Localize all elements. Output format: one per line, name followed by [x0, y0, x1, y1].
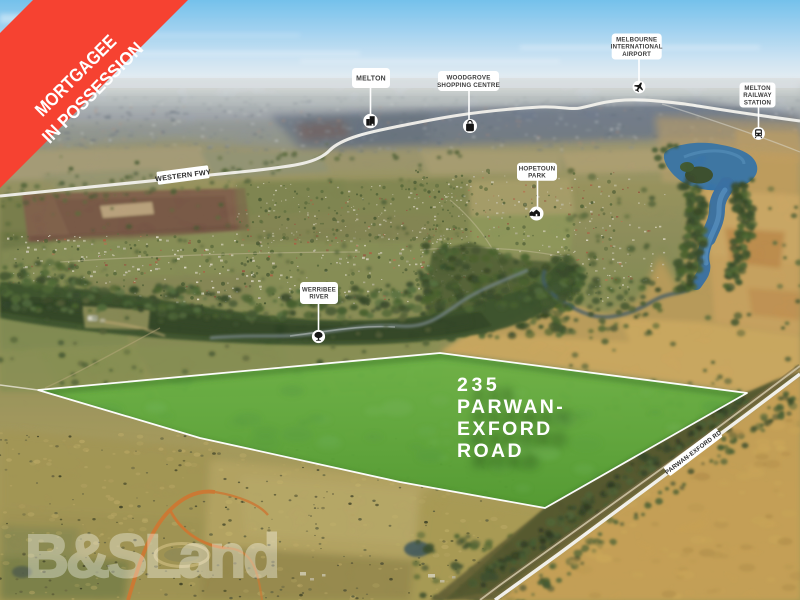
svg-text:MELBOURNE: MELBOURNE — [616, 37, 657, 44]
svg-text:MELTON: MELTON — [744, 85, 770, 92]
svg-text:INTERNATIONAL: INTERNATIONAL — [611, 44, 663, 51]
svg-text:235: 235 — [457, 374, 500, 396]
svg-text:AIRPORT: AIRPORT — [622, 51, 651, 58]
svg-text:SHOPPING CENTRE: SHOPPING CENTRE — [437, 82, 500, 89]
svg-text:WOODGROVE: WOODGROVE — [446, 75, 490, 82]
svg-text:HOPETOUN: HOPETOUN — [519, 165, 556, 172]
svg-text:RAILWAY: RAILWAY — [743, 92, 772, 99]
svg-text:STATION: STATION — [744, 99, 771, 106]
svg-text:MELTON: MELTON — [356, 76, 386, 83]
svg-text:PARK: PARK — [528, 173, 546, 180]
svg-text:PARWAN-: PARWAN- — [457, 396, 565, 418]
svg-text:EXFORD: EXFORD — [457, 418, 553, 440]
svg-text:WERRIBEE: WERRIBEE — [302, 288, 336, 294]
svg-text:ROAD: ROAD — [457, 440, 524, 462]
svg-text:B&SLand: B&SLand — [25, 522, 277, 590]
svg-text:RIVER: RIVER — [309, 295, 329, 301]
